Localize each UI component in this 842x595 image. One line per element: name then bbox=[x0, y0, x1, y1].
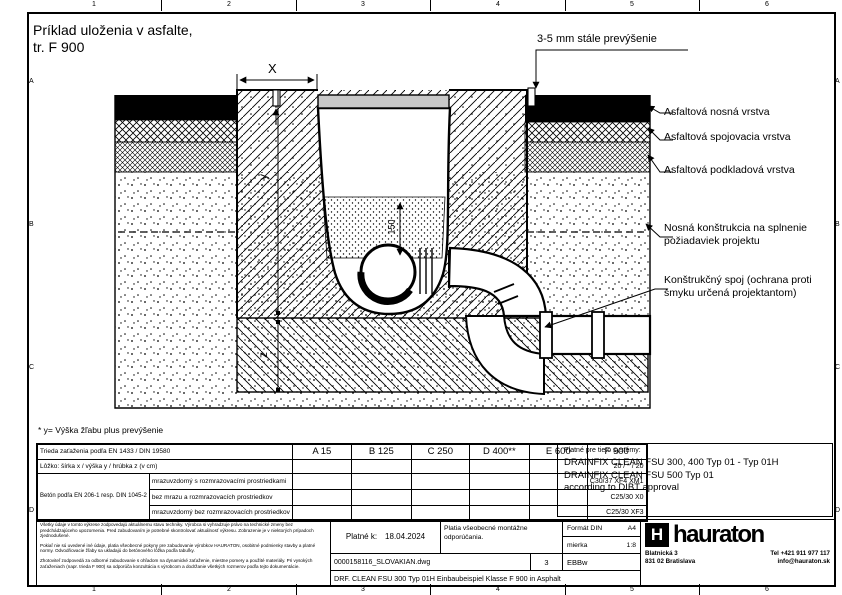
valid-date-value: 18.04.2024 bbox=[385, 532, 425, 541]
concrete-row-label: bez mrazu a rozmrazovacích prostriedkov bbox=[149, 489, 292, 505]
general-note-cell: Platia všeobecné montážne odporúčania. bbox=[441, 520, 563, 554]
frame-row-label: D bbox=[835, 507, 840, 514]
table-row: Trieda zaťaženia podľa EN 1433 / DIN 195… bbox=[37, 444, 647, 459]
company-email: info@hauraton.sk bbox=[770, 558, 830, 566]
asphalt-layers-left bbox=[115, 95, 237, 172]
valid-date-label: Platné k: bbox=[346, 532, 377, 541]
frame-tick bbox=[699, 0, 700, 11]
file-name-cell: 0000158116_SLOVAKIAN.dwg bbox=[331, 554, 531, 571]
scale-label: mierka bbox=[567, 542, 587, 549]
class-c250: C 250 bbox=[411, 444, 469, 459]
table-row: Lôžko: šírka x / výška y / hrúbka z (v c… bbox=[37, 459, 647, 473]
frame-col-label: 4 bbox=[488, 586, 508, 593]
valid-date-cell: Platné k: 18.04.2024 bbox=[331, 520, 441, 554]
load-class-table: Trieda zaťaženia podľa EN 1433 / DIN 195… bbox=[36, 443, 648, 522]
cover-grating bbox=[318, 95, 449, 108]
frame-col-label: 4 bbox=[488, 1, 508, 8]
author-code-cell: EBBw bbox=[563, 554, 641, 571]
filter-channel-body bbox=[318, 108, 450, 314]
frame-col-label: 3 bbox=[353, 586, 373, 593]
scale-value: 1:8 bbox=[627, 542, 636, 549]
title-block: Všetky údaje v tomto výkrese zodpovedajú… bbox=[36, 519, 835, 586]
frame-tick bbox=[296, 0, 297, 11]
frame-tick bbox=[430, 0, 431, 11]
label-construction-joint: Konštrukčný spoj (ochrana proti šmyku ur… bbox=[664, 274, 832, 299]
systems-line: according to DIBT approval bbox=[564, 482, 832, 495]
company-address-line2: 831 02 Bratislava bbox=[645, 558, 695, 566]
company-address-line1: Blatnická 3 bbox=[645, 550, 695, 558]
frame-tick bbox=[161, 0, 162, 11]
dimension-x bbox=[237, 74, 317, 90]
footnote: * y= Výška žľabu plus prevýšenie bbox=[38, 425, 163, 435]
frame-col-label: 6 bbox=[757, 586, 777, 593]
company-block: H hauraton Blatnická 3 831 02 Bratislava… bbox=[641, 520, 834, 585]
dim-label-150: 150 bbox=[387, 219, 397, 234]
asphalt-layers-right bbox=[525, 95, 650, 172]
dim-label-y: y bbox=[256, 174, 270, 180]
frame-col-label: 2 bbox=[219, 1, 239, 8]
disclaimer-text: Všetky údaje v tomto výkrese zodpovedajú… bbox=[37, 520, 331, 585]
format-value: A4 bbox=[628, 525, 636, 532]
pipe-coupling bbox=[540, 312, 552, 358]
label-load-bearing-structure: Nosná konštrukcia na splnenie požiadavie… bbox=[664, 222, 832, 247]
load-class-row-label: Trieda zaťaženia podľa EN 1433 / DIN 195… bbox=[37, 444, 292, 459]
frame-col-label: 1 bbox=[84, 1, 104, 8]
disclaimer-paragraph: Všetky údaje v tomto výkrese zodpovedajú… bbox=[40, 522, 327, 539]
sheet-number-cell: 3 bbox=[531, 554, 563, 571]
company-phone: Tel +421 911 977 117 bbox=[770, 550, 830, 558]
label-asphalt-base-course: Asfaltová podkladová vrstva bbox=[664, 164, 832, 177]
frame-col-label: 1 bbox=[84, 586, 104, 593]
company-logo: H hauraton bbox=[645, 523, 830, 547]
pipe-coupling bbox=[592, 312, 604, 358]
format-label: Formát DIN bbox=[567, 525, 602, 532]
class-b125: B 125 bbox=[351, 444, 411, 459]
frame-col-label: 5 bbox=[622, 1, 642, 8]
hauraton-logo-icon: H bbox=[645, 523, 669, 547]
drawing-title-cell: DRF. CLEAN FSU 300 Typ 01H Einbaubeispie… bbox=[331, 571, 641, 585]
concrete-group-label: Betón podľa EN 206-1 resp. DIN 1045-2 bbox=[37, 473, 149, 521]
valid-systems-panel: Platné pre tieto systémy: DRAINFIX CLEAN… bbox=[557, 443, 833, 517]
concrete-row-label: mrazuvzdorný s rozmrazovacími prostriedk… bbox=[149, 473, 292, 489]
systems-heading: Platné pre tieto systémy: bbox=[564, 447, 832, 454]
class-d400: D 400** bbox=[469, 444, 529, 459]
frame-col-label: 6 bbox=[757, 1, 777, 8]
disclaimer-paragraph: Pokiaľ nie sú uvedené iné údaje, platia … bbox=[40, 543, 327, 554]
dim-label-x: X bbox=[268, 61, 277, 76]
systems-line: DRAINFIX CLEAN FSU 300, 400 Typ 01 - Typ… bbox=[564, 457, 832, 470]
frame-col-label: 3 bbox=[353, 1, 373, 8]
frame-row-label: D bbox=[29, 507, 34, 514]
scale-cell: mierka 1:8 bbox=[563, 537, 641, 554]
frame-tick bbox=[565, 0, 566, 11]
cad-sheet: 1 2 3 4 5 6 1 2 3 4 5 6 A B C D A B C D … bbox=[0, 0, 842, 595]
frame-col-label: 5 bbox=[622, 586, 642, 593]
table-row: Betón podľa EN 206-1 resp. DIN 1045-2 mr… bbox=[37, 473, 647, 489]
label-asphalt-wearing-course: Asfaltová nosná vrstva bbox=[664, 106, 832, 119]
disclaimer-paragraph: Zhotoviteľ zodpovedá za odborné zabudova… bbox=[40, 558, 327, 569]
hauraton-logo-text: hauraton bbox=[673, 523, 764, 547]
surcharge-note: 3-5 mm stále prevýšenie bbox=[537, 33, 657, 45]
systems-line: DRAINFIX CLEAN FSU 500 Typ 01 bbox=[564, 470, 832, 483]
bedding-row-label: Lôžko: šírka x / výška y / hrúbka z (v c… bbox=[37, 459, 292, 473]
class-a15: A 15 bbox=[292, 444, 351, 459]
frame-col-label: 2 bbox=[219, 586, 239, 593]
label-asphalt-binder-course: Asfaltová spojovacia vrstva bbox=[664, 131, 832, 144]
dim-label-z: z bbox=[256, 352, 270, 358]
company-contact: Blatnická 3 831 02 Bratislava Tel +421 9… bbox=[645, 550, 830, 565]
format-cell: Formát DIN A4 bbox=[563, 520, 641, 537]
